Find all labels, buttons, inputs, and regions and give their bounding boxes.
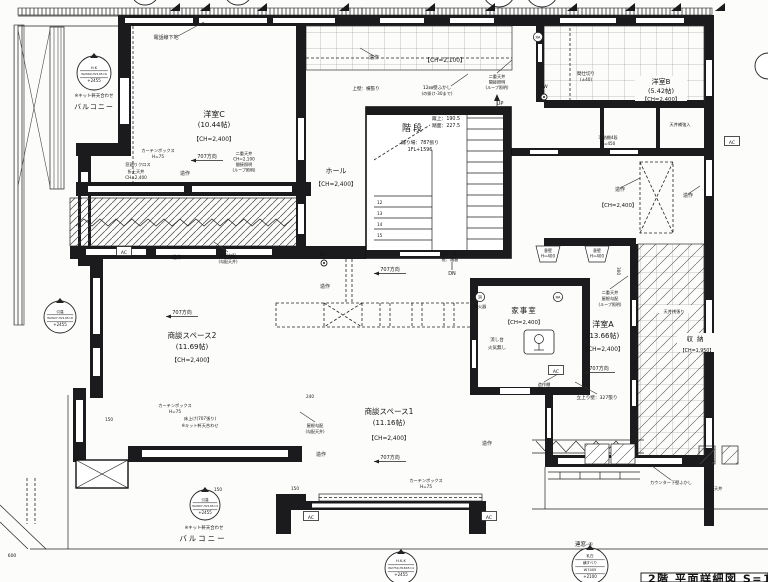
note-zosaku: 造作 <box>482 440 492 447</box>
note-floor-raise: ※キット軒天合わせ <box>181 422 218 429</box>
note-curtain-box-1: カーテンボックス <box>141 147 174 154</box>
room-shodan-1: (11.16帖) <box>373 418 406 427</box>
ceiling-light-dot <box>543 96 545 98</box>
note-window-cloth: 窓廻りクロス <box>125 161 150 168</box>
note-counter-fukashi: カウンター下壁ふかし <box>650 479 692 486</box>
note-agarikamachi: 框：踏板 <box>442 256 460 263</box>
note-koujou-ceiling: 勾上天井 <box>706 485 723 492</box>
note-sink: 火気無し <box>488 344 506 351</box>
note-oriage-ceiling: CH=2,400 <box>125 175 147 180</box>
light-label: 9W <box>319 252 327 258</box>
note-roof-slope-2: (勾配天井) <box>305 428 325 434</box>
tag-label: RA <box>555 295 560 300</box>
tag-label: RA <box>535 35 540 40</box>
marker-text: W2607,H2105=6 <box>47 316 73 320</box>
note-oriage-ceiling: 折上天井 <box>128 168 145 175</box>
room-yoshitsu-a: (13.66帖) <box>587 331 620 340</box>
marker-text: +2455 <box>87 78 101 83</box>
room-yoshitsu-b: 【CH=2,400】 <box>642 96 681 103</box>
room-yoshitsu-a: 洋室A <box>592 319 614 329</box>
stairs-landing-note: 1FL+1596 <box>408 147 433 153</box>
dim-240: 240 <box>306 394 314 399</box>
marker-text: 横すべり <box>583 560 597 565</box>
marker-text: +2455 <box>53 322 67 327</box>
note-majikiri: 間仕切り <box>577 70 595 77</box>
dim-150: 150 <box>105 417 113 422</box>
light-label: 9W <box>540 84 548 90</box>
note-ceiling-batten: 天井桟張り <box>664 308 685 315</box>
room-yoshitsu-b: 洋室B <box>652 77 671 86</box>
note-tachiagari: 立上り壁：327張り <box>577 394 618 401</box>
note-roof-slope-1: 屋根勾配 <box>220 252 238 259</box>
room-kajishitsu: 【CH=2,400】 <box>505 319 544 326</box>
stair-step-num: 12 <box>377 200 383 205</box>
note-tarekabe-2: 垂壁 <box>593 247 601 253</box>
dim-300: 300 <box>616 267 621 275</box>
marker-text: +2455 <box>394 572 408 577</box>
note-zosaku: 造作 <box>172 254 182 261</box>
room-shuno: 【CH=1,950】 <box>680 348 714 354</box>
marker-text: +2100 <box>583 574 597 579</box>
note-roof-slope-2: 屋根勾配 <box>307 422 325 429</box>
stair-step-num: 14 <box>377 222 383 227</box>
marker-text: +2455 <box>198 510 212 515</box>
sink-icon <box>524 330 554 354</box>
note-tarekabe-1: H=400 <box>541 254 555 259</box>
note-double-ceiling-1: CH=2,100 <box>233 157 255 162</box>
tag-label: 消 <box>478 295 482 300</box>
note-zosaku: 造作 <box>369 54 379 61</box>
flooring-direction: 707方向 <box>197 153 217 160</box>
note-wall-fukashi: 12㎜壁ふかし <box>423 84 452 91</box>
stairs-dn: DN <box>448 271 456 277</box>
room-balcony-bottom: バルコニー <box>179 534 226 543</box>
equipment-box-label: AC <box>121 250 127 256</box>
marker-text: 引違 <box>56 309 64 314</box>
note-majikiri: (±40) <box>580 77 592 82</box>
note-shelf: H=450 <box>601 141 616 146</box>
room-shuno: 収納 <box>687 334 708 343</box>
marker-text: W7405 <box>584 568 597 572</box>
note-ch2100: 【CH=2,100】 <box>424 57 465 64</box>
room-shodan-1: 【CH=2,400】 <box>368 435 409 442</box>
flooring-direction: 707方向 <box>172 309 192 316</box>
flooring-direction: 707方向 <box>589 365 609 372</box>
floor-plan-drawing: 2階 平面詳細図 S=1/50 洋室C(10.44帖)【CH=2,400】洋室B… <box>0 0 768 582</box>
floor-plan-sheet: 2階 平面詳細図 S=1/50 洋室C(10.44帖)【CH=2,400】洋室B… <box>0 0 768 582</box>
stair-step-num: 15 <box>377 233 383 238</box>
note-double-ceiling-1: (ループ照明) <box>233 167 256 173</box>
note-tarekabe-1: 垂壁 <box>544 247 552 253</box>
note-fire-ext: 消火器 <box>474 303 487 310</box>
room-shodan-2: 【CH=2,400】 <box>171 357 212 364</box>
equipment-box-label: AC <box>486 515 492 521</box>
flooring-direction: 707方向 <box>380 454 400 461</box>
note-tarekabe-2: H=400 <box>590 254 604 259</box>
note-telephone: 電話線下地 <box>153 34 178 41</box>
hall-west-wall <box>296 26 306 259</box>
room-yoshitsu-c: (10.44帖) <box>198 120 231 129</box>
stair-step-num: 13 <box>377 211 383 216</box>
note-curtain-box-2: H=75 <box>420 484 432 489</box>
note-double-ceiling-3: 屋根勾配 <box>602 295 620 302</box>
marker-text: W2807,H2105=3 <box>192 504 218 508</box>
marker-text: H.K <box>91 66 98 70</box>
note-zosaku: 造作 <box>615 186 625 193</box>
room-balcony-top: バルコニー <box>74 103 114 111</box>
note-wall-fukashi: (の掛け-30まで) <box>421 90 452 97</box>
marker-text: W2750,H1845=4 <box>388 566 414 570</box>
note-zosaku: 造作 <box>683 192 693 199</box>
note-curtain-box-2: カーテンボックス <box>409 477 442 484</box>
marker-text: W2660,H2105=6 <box>81 72 107 76</box>
equipment-box-label: AC <box>553 369 559 375</box>
note-roof-slope-1: (勾配天井) <box>218 258 238 264</box>
stairs-riser-tread: 踏面：227.5 <box>432 122 460 129</box>
title-block: 2階 平面詳細図 S=1/50 <box>641 572 768 582</box>
room-shodan-2: 商談スペース2 <box>168 330 217 340</box>
note-kit-top: ※キット軒天合わせ <box>75 92 114 99</box>
note-upper-wall: 上壁：横張り <box>353 85 380 92</box>
marker-text: H.K.K <box>396 559 406 563</box>
note-agarikamachi: 上框：通し <box>440 250 461 257</box>
room-yoshitsu-a: 【CH=2,400】 <box>582 346 623 353</box>
note-curtain-box-1: H=75 <box>152 154 164 159</box>
dim-600: 600 <box>8 553 17 559</box>
marker-text: 乳白 <box>586 553 594 558</box>
note-curtain-box-3: H=75 <box>169 409 181 414</box>
room-stairs: 階段 <box>402 122 424 134</box>
room-shodan-2: (11.69帖) <box>176 342 209 351</box>
equipment-box-label: AC <box>729 140 735 146</box>
dim-150: 150 <box>214 487 222 492</box>
note-zosaku-shelf: 造作棚 <box>538 381 551 388</box>
note-ch2400-wic: 【CH=2,400】 <box>599 202 638 209</box>
room-yoshitsu-b: (5.42帖) <box>648 86 674 95</box>
equipment-box-label: AC <box>308 515 314 521</box>
note-ceiling-reinforce: 天井補強入 <box>670 121 692 128</box>
note-floor-raise: 床上げ(707張り) <box>184 415 217 422</box>
note-double-ceiling-2: (ループ照明) <box>486 84 509 90</box>
ceiling-light-dot <box>323 262 325 264</box>
note-double-ceiling-3: (ループ照明) <box>599 301 622 307</box>
room-kajishitsu: 家事室 <box>511 305 537 315</box>
room-hall: 【CH=2,400】 <box>315 181 356 188</box>
note-kit-bottom: ※キット軒天合わせ <box>185 524 224 531</box>
room-yoshitsu-c: 洋室C <box>203 109 225 119</box>
stairs-landing-note: 踊り場：787張り <box>401 139 439 146</box>
note-curtain-box-3: カーテンボックス <box>158 402 191 409</box>
dim-150: 150 <box>291 486 299 491</box>
room-hall: ホール <box>326 167 347 175</box>
note-sink: 流し台 <box>490 336 504 343</box>
stairs-riser-tread: 蹴上：190.5 <box>432 115 460 122</box>
stairs-up: UP <box>497 101 504 107</box>
room-yoshitsu-c: 【CH=2,400】 <box>193 136 234 143</box>
note-zosaku: 造作 <box>320 283 330 290</box>
note-shelf: 可動棚4段 <box>598 134 618 141</box>
note-zosaku: 造作 <box>316 451 326 458</box>
sheet-title: 2階 平面詳細図 S=1/50 <box>648 572 768 582</box>
room-shodan-1: 商談スペース1 <box>365 406 414 416</box>
note-zosaku: 造作 <box>180 170 190 177</box>
marker-text: 引違 <box>201 497 209 502</box>
note-double-ceiling-3: 二重天井 <box>602 289 619 296</box>
flooring-direction: 707方向 <box>380 266 400 273</box>
